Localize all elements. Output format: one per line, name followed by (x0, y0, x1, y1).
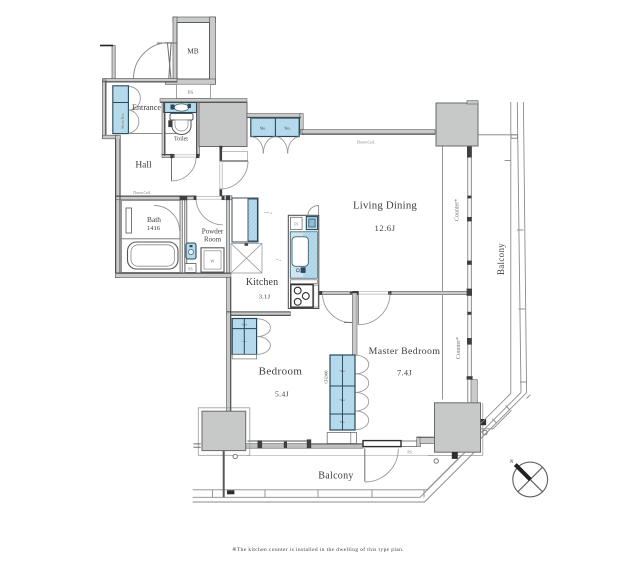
svg-text:Shoes Box: Shoes Box (121, 113, 125, 129)
svg-text:Kitchen: Kitchen (246, 277, 278, 288)
svg-text:FS: FS (294, 223, 298, 227)
svg-text:Room: Room (204, 236, 222, 244)
svg-text:Living Dining: Living Dining (353, 200, 417, 212)
svg-text:CH2400: CH2400 (325, 370, 329, 383)
svg-text:N: N (509, 459, 514, 465)
svg-text:5.4J: 5.4J (275, 390, 289, 399)
svg-text:Entrance: Entrance (132, 103, 161, 112)
svg-text:PS: PS (188, 267, 192, 272)
svg-text:Down Ceil.: Down Ceil. (357, 141, 375, 145)
svg-text:Counter*: Counter* (455, 199, 461, 221)
svg-text:Toilet: Toilet (174, 137, 188, 143)
svg-text:·Sto·: ·Sto· (339, 369, 346, 373)
svg-text:Down Ceil.: Down Ceil. (133, 191, 151, 195)
svg-text:Balcony: Balcony (318, 471, 353, 482)
svg-text:Powder: Powder (202, 228, 224, 236)
svg-text:Sto.: Sto. (340, 420, 346, 424)
svg-text:MB: MB (187, 47, 199, 56)
svg-text:1416: 1416 (147, 225, 161, 232)
svg-text:3.1J: 3.1J (259, 294, 271, 301)
svg-text:Hall: Hall (135, 161, 152, 171)
svg-text:12.6J: 12.6J (375, 223, 396, 233)
svg-text:─→: ─→ (275, 258, 282, 262)
svg-text:Balcony: Balcony (496, 243, 506, 275)
svg-text:·Sto·: ·Sto· (339, 398, 346, 402)
svg-text:Bedroom: Bedroom (259, 366, 303, 378)
svg-text:┄┄: ┄┄ (242, 340, 246, 344)
svg-text:※The kitchen counter is instal: ※The kitchen counter is installed in the… (232, 546, 404, 553)
svg-text:PS.: PS. (407, 451, 412, 455)
svg-text:7.4J: 7.4J (397, 369, 412, 378)
svg-text:PS: PS (188, 91, 194, 96)
svg-text:──→: ──→ (263, 211, 272, 215)
svg-text:Sto.: Sto. (284, 126, 290, 131)
svg-text:·Sto·: ·Sto· (241, 323, 248, 327)
svg-text:Bath: Bath (147, 215, 161, 224)
svg-text:Master Bedroom: Master Bedroom (369, 346, 441, 357)
svg-text:·: · (337, 437, 338, 441)
svg-text:Sto.: Sto. (260, 126, 266, 131)
svg-text:Counter*: Counter* (456, 337, 462, 359)
